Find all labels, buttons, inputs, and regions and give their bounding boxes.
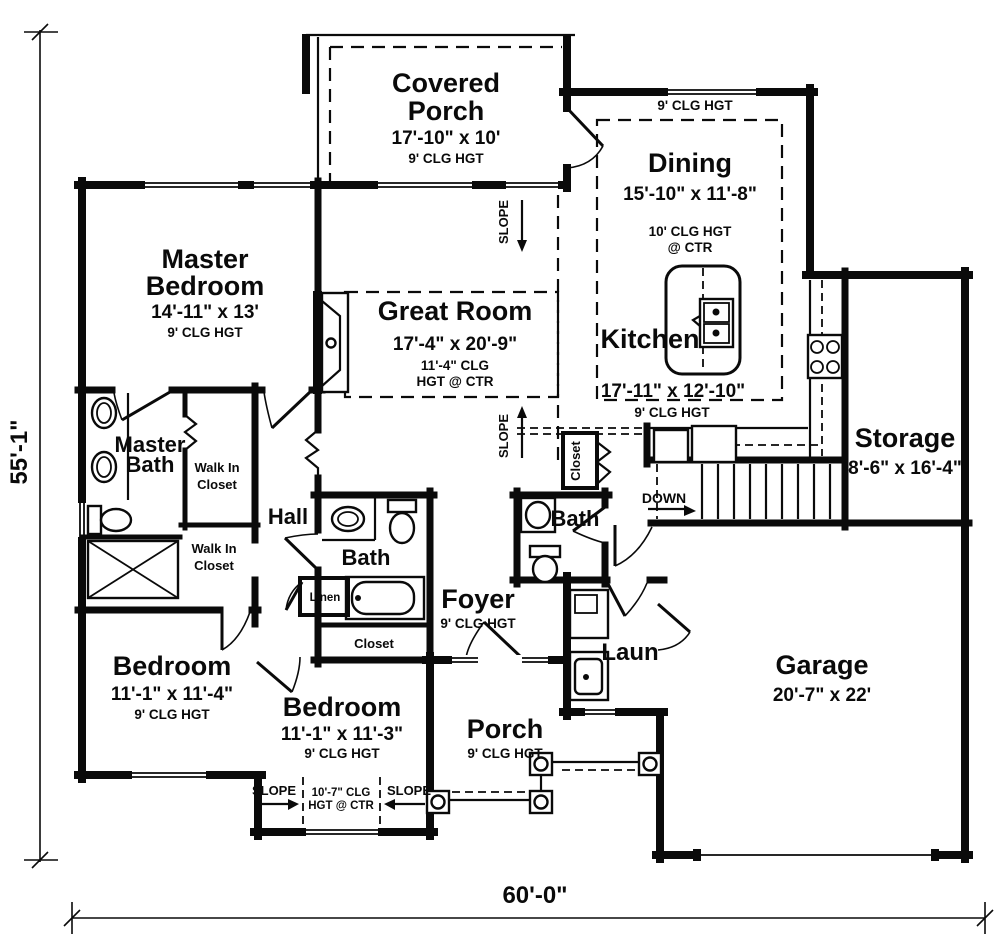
room-title: Bedroom — [146, 271, 265, 301]
master-bath-door — [114, 392, 170, 420]
svg-text:Walk In: Walk In — [194, 460, 239, 475]
room-title: Master — [161, 244, 249, 274]
svg-text:9' CLG HGT: 9' CLG HGT — [467, 746, 543, 761]
svg-text:9' CLG HGT: 9' CLG HGT — [134, 707, 210, 722]
window — [506, 180, 558, 190]
svg-text:Garage: Garage — [775, 650, 868, 680]
refrigerator — [692, 426, 736, 462]
walk-in-closet2-label: Walk In Closet — [191, 541, 236, 573]
stairs: DOWN — [642, 464, 830, 519]
toilet — [88, 506, 131, 534]
window — [77, 503, 87, 537]
washer — [570, 590, 608, 638]
covered-porch-label: Covered Porch 17'-10" x 10' 9' CLG HGT — [392, 68, 501, 166]
svg-text:Porch: Porch — [467, 714, 544, 744]
fireplace — [313, 291, 348, 394]
storage-label: Storage 8'-6" x 16'-4" — [848, 423, 962, 479]
slope-label: SLOPE — [496, 200, 511, 244]
garage-door — [693, 849, 939, 861]
garage-entry-door — [658, 604, 690, 650]
svg-text:10'-7" CLG: 10'-7" CLG — [312, 787, 371, 799]
dimension-left: 55'-1" — [6, 24, 58, 868]
down-label: DOWN — [642, 490, 686, 506]
master-bedroom-door — [264, 392, 310, 428]
svg-text:Bedroom: Bedroom — [283, 692, 402, 722]
room-clg: 11'-4" CLG — [421, 358, 489, 373]
room-title: Kitchen — [600, 324, 699, 354]
front-door-sidelites — [452, 655, 548, 665]
kitchen-fixtures — [647, 266, 842, 462]
svg-text:HGT @ CTR: HGT @ CTR — [308, 800, 374, 812]
bedroom2-slope: SLOPE SLOPE 10'-7" CLG HGT @ CTR — [252, 783, 431, 812]
toilet — [530, 546, 560, 582]
svg-text:11'-1" x 11'-4": 11'-1" x 11'-4" — [111, 684, 233, 705]
cased-openings — [185, 415, 610, 484]
stair-hall-door — [615, 525, 652, 566]
window — [132, 770, 206, 780]
master-bath-label: Master Bath — [115, 432, 186, 477]
laundry-door — [607, 582, 647, 616]
great-room-label: Great Room 17'-4" x 20'-9" 11'-4" CLG HG… — [378, 296, 533, 389]
window — [378, 180, 472, 190]
porch-edge — [427, 753, 661, 813]
porch-label: Porch 9' CLG HGT — [467, 714, 544, 761]
window — [306, 827, 378, 837]
svg-text:Closet: Closet — [197, 477, 237, 492]
room-title: Dining — [648, 148, 732, 178]
closet1-label: Closet — [354, 636, 394, 651]
toilet — [388, 500, 416, 543]
sink — [332, 507, 364, 531]
master-bath-fixtures — [88, 393, 178, 598]
svg-text:9' CLG HGT: 9' CLG HGT — [440, 616, 516, 631]
svg-text:Walk In: Walk In — [191, 541, 236, 556]
sink — [92, 398, 116, 428]
master-bedroom-label: Master Bedroom 14'-11" x 13' 9' CLG HGT — [146, 244, 265, 340]
room-clg: @ CTR — [668, 240, 713, 255]
window — [585, 707, 615, 717]
walk-in-closet1-label: Walk In Closet — [194, 460, 239, 492]
room-size: 17'-10" x 10' — [392, 128, 501, 149]
bedroom1-door — [222, 612, 250, 650]
slope-label: SLOPE — [496, 414, 511, 458]
hall-label: Hall — [268, 504, 308, 529]
svg-text:SLOPE: SLOPE — [387, 783, 431, 798]
room-clg: 9' CLG HGT — [657, 98, 733, 113]
bath1-label: Bath — [342, 545, 391, 570]
svg-text:8'-6" x 16'-4": 8'-6" x 16'-4" — [848, 458, 962, 479]
svg-text:Storage: Storage — [855, 423, 956, 453]
bedroom2-door — [257, 657, 300, 692]
svg-text:SLOPE: SLOPE — [252, 783, 296, 798]
svg-text:Closet: Closet — [194, 558, 234, 573]
bedroom1-label: Bedroom 11'-1" x 11'-4" 9' CLG HGT — [111, 651, 233, 722]
slope-arrow-lower: SLOPE — [496, 406, 527, 458]
bath1-door — [285, 534, 318, 570]
svg-text:Bedroom: Bedroom — [113, 651, 232, 681]
room-clg: 10' CLG HGT — [649, 224, 732, 239]
window — [145, 180, 238, 190]
room-size: 15'-10" x 11'-8" — [623, 184, 757, 205]
room-title: Great Room — [378, 296, 533, 326]
dining-label: 9' CLG HGT Dining 15'-10" x 11'-8" 10' C… — [623, 98, 757, 255]
room-clg: HGT @ CTR — [417, 374, 494, 389]
room-size: 17'-4" x 20'-9" — [393, 334, 517, 355]
garage-label: Garage 20'-7" x 22' — [773, 650, 871, 706]
room-title: Covered — [392, 68, 500, 98]
sink — [92, 452, 116, 482]
dim-width-label: 60'-0" — [502, 882, 567, 909]
bedroom2-label: Bedroom 11'-1" x 11'-3" 9' CLG HGT — [281, 692, 403, 761]
bath2-label: Bath — [551, 506, 600, 531]
window — [668, 87, 756, 97]
floor-plan-sheet: 55'-1" 60'-0" — [0, 0, 1000, 947]
porch-column — [530, 791, 552, 813]
porch-column — [639, 753, 661, 775]
dimension-bottom: 60'-0" — [64, 882, 993, 934]
shower — [88, 541, 178, 598]
room-title: Porch — [408, 96, 485, 126]
room-clg: 9' CLG HGT — [167, 325, 243, 340]
floor-plan-drawing: 55'-1" 60'-0" — [0, 0, 1000, 947]
laundry-label: Laun — [601, 639, 658, 666]
svg-text:11'-1" x 11'-3": 11'-1" x 11'-3" — [281, 724, 403, 745]
linen-label: Linen — [310, 592, 341, 604]
bathtub — [346, 577, 424, 619]
foyer-label: Foyer 9' CLG HGT — [440, 584, 516, 631]
room-clg: 9' CLG HGT — [634, 405, 710, 420]
window — [254, 180, 310, 190]
svg-text:Foyer: Foyer — [441, 584, 515, 614]
closet2-label: Closet — [568, 440, 583, 480]
svg-text:9' CLG HGT: 9' CLG HGT — [304, 746, 380, 761]
slope-arrow-upper: SLOPE — [496, 200, 527, 252]
pantry-cabinet — [654, 430, 688, 462]
range — [808, 335, 842, 378]
room-title: Bath — [126, 452, 175, 477]
room-size: 14'-11" x 13' — [151, 302, 259, 323]
room-clg: 9' CLG HGT — [408, 151, 484, 166]
svg-text:20'-7" x 22': 20'-7" x 22' — [773, 685, 871, 706]
room-size: 17'-11" x 12'-10" — [601, 381, 745, 402]
dim-height-label: 55'-1" — [6, 419, 33, 484]
